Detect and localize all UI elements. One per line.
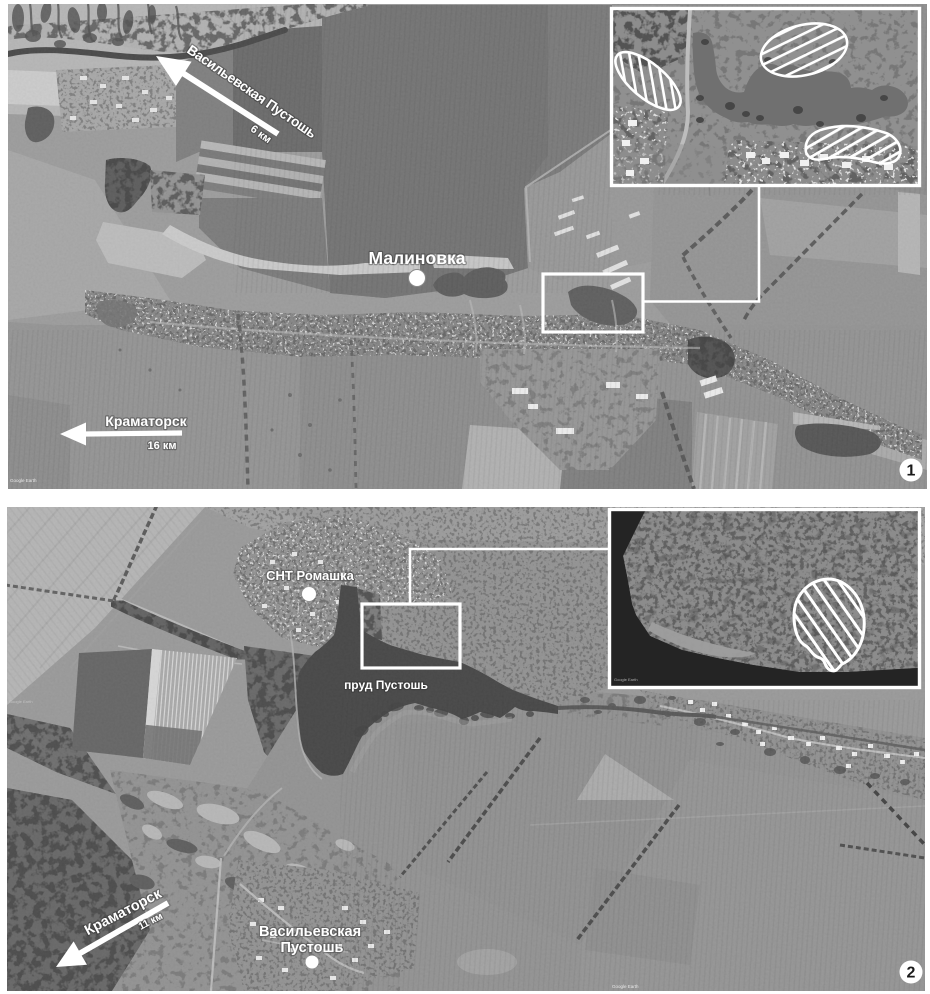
svg-text:СНТ Ромашка: СНТ Ромашка — [266, 568, 354, 583]
svg-text:1: 1 — [907, 463, 916, 480]
svg-text:Краматорск: Краматорск — [105, 413, 187, 429]
svg-text:Google Earth: Google Earth — [9, 699, 33, 704]
svg-text:Малиновка: Малиновка — [369, 248, 466, 268]
svg-text:2: 2 — [907, 965, 916, 982]
svg-text:16 км: 16 км — [148, 440, 177, 452]
svg-text:Васильевская: Васильевская — [259, 924, 361, 940]
svg-text:Google Earth: Google Earth — [10, 478, 37, 483]
svg-text:Google Earth: Google Earth — [614, 677, 638, 682]
svg-text:Google Earth: Google Earth — [612, 984, 639, 989]
svg-text:Пустошь: Пустошь — [281, 940, 344, 956]
svg-text:пруд Пустошь: пруд Пустошь — [344, 678, 428, 692]
